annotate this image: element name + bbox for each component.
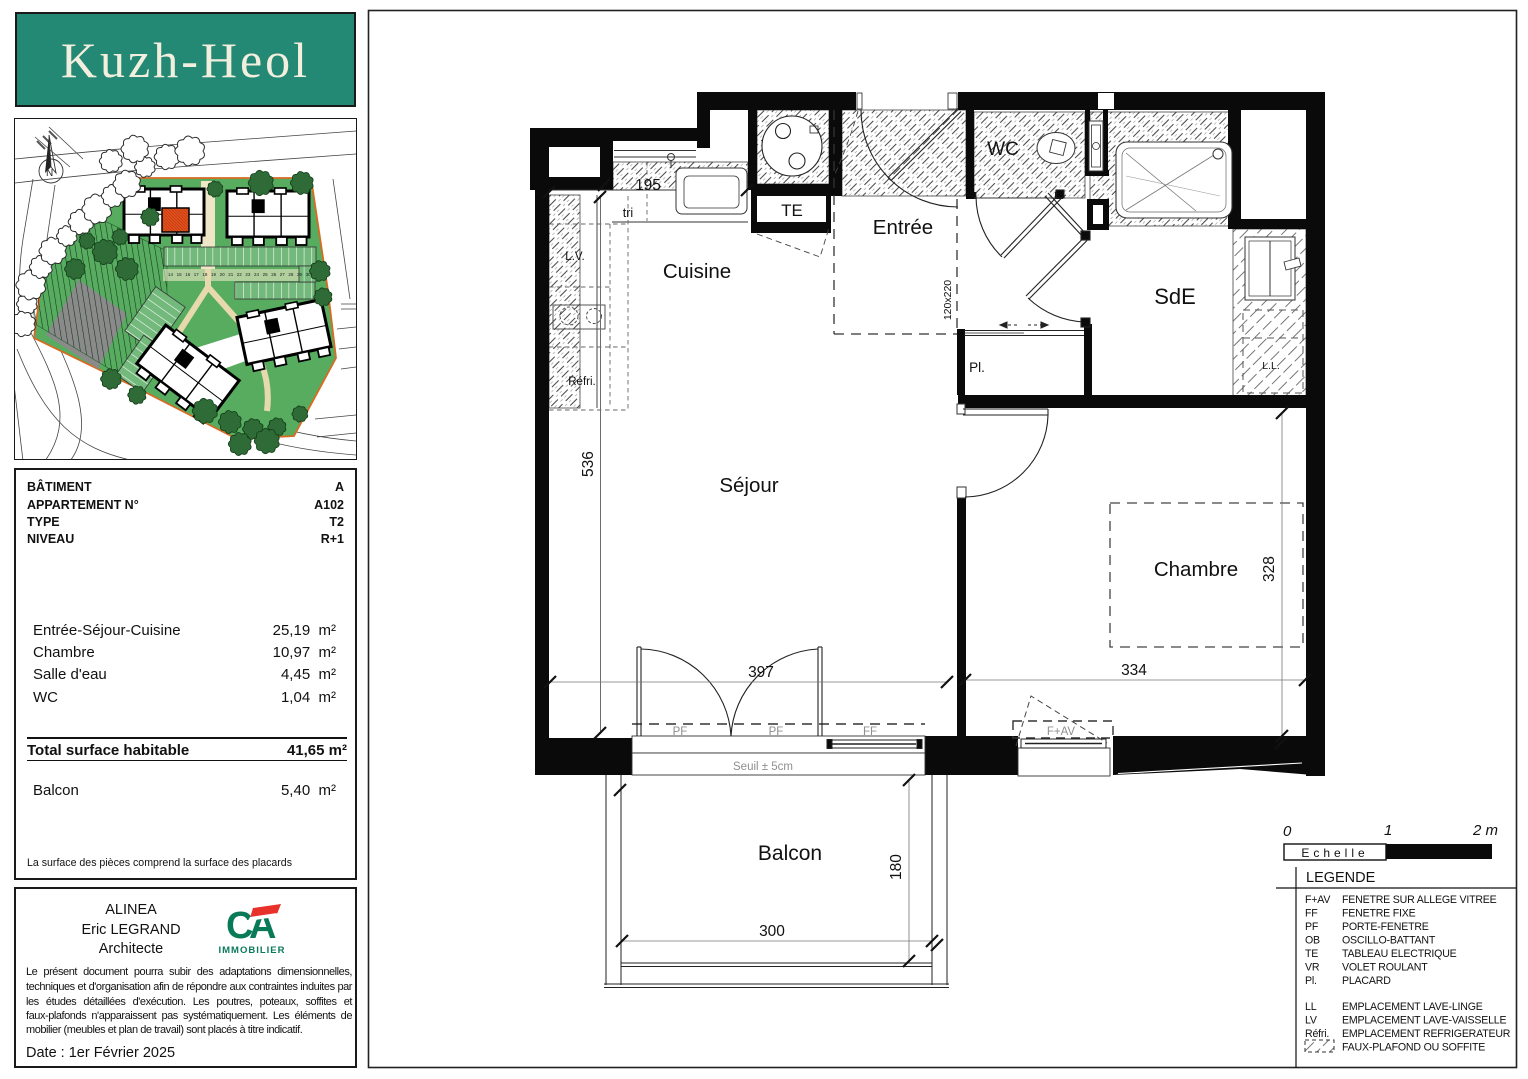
svg-text:Réfri.: Réfri. <box>568 376 595 388</box>
svg-text:PF: PF <box>673 726 688 738</box>
svg-text:2 m: 2 m <box>1472 822 1498 839</box>
svg-text:OSCILLO-BATTANT: OSCILLO-BATTANT <box>1342 935 1436 947</box>
svg-text:Chambre: Chambre <box>1154 558 1238 581</box>
svg-text:EMPLACEMENT REFRIGERATEUR: EMPLACEMENT REFRIGERATEUR <box>1342 1028 1511 1040</box>
svg-text:20: 20 <box>220 272 226 277</box>
svg-text:FAUX-PLAFOND OU SOFFITE: FAUX-PLAFOND OU SOFFITE <box>1342 1042 1485 1054</box>
svg-text:195: 195 <box>635 177 661 194</box>
svg-text:WC: WC <box>987 139 1019 160</box>
svg-text:VR: VR <box>1305 962 1320 974</box>
svg-text:180: 180 <box>888 854 905 880</box>
svg-text:Entrée: Entrée <box>873 216 933 239</box>
svg-text:Séjour: Séjour <box>719 474 778 497</box>
svg-text:1: 1 <box>1384 822 1392 839</box>
svg-text:328: 328 <box>1261 556 1278 582</box>
svg-text:LV: LV <box>1305 1015 1318 1027</box>
svg-text:PF: PF <box>1305 921 1319 933</box>
svg-text:SdE: SdE <box>1154 284 1196 309</box>
svg-text:24: 24 <box>254 272 260 277</box>
svg-text:300: 300 <box>759 923 785 940</box>
svg-text:22: 22 <box>237 272 243 277</box>
svg-text:Balcon: Balcon <box>758 842 822 865</box>
svg-text:28: 28 <box>288 272 294 277</box>
svg-text:FF: FF <box>1305 908 1318 920</box>
svg-text:17: 17 <box>194 272 200 277</box>
svg-text:EMPLACEMENT LAVE-VAISSELLE: EMPLACEMENT LAVE-VAISSELLE <box>1342 1015 1506 1027</box>
svg-text:14: 14 <box>168 272 174 277</box>
svg-text:TE: TE <box>1305 948 1318 960</box>
svg-text:27: 27 <box>280 272 286 277</box>
svg-text:25: 25 <box>263 272 269 277</box>
svg-text:15: 15 <box>177 272 183 277</box>
svg-text:536: 536 <box>580 451 597 477</box>
svg-text:Pl.: Pl. <box>1305 975 1317 987</box>
svg-text:LL: LL <box>1305 1001 1317 1013</box>
svg-text:FF: FF <box>863 726 877 738</box>
svg-text:Réfri.: Réfri. <box>1305 1028 1329 1040</box>
svg-text:PLACARD: PLACARD <box>1342 975 1391 987</box>
svg-text:OB: OB <box>1305 935 1320 947</box>
svg-text:L.L.: L.L. <box>1262 360 1280 372</box>
svg-text:EMPLACEMENT LAVE-LINGE: EMPLACEMENT LAVE-LINGE <box>1342 1001 1483 1013</box>
svg-text:IMMOBILIER: IMMOBILIER <box>219 945 286 956</box>
svg-text:334: 334 <box>1121 662 1147 679</box>
svg-text:FENETRE SUR ALLEGE VITREE: FENETRE SUR ALLEGE VITREE <box>1342 894 1497 906</box>
svg-text:F+AV: F+AV <box>1047 726 1076 738</box>
svg-text:Pl.: Pl. <box>969 360 985 375</box>
svg-text:PF: PF <box>769 726 784 738</box>
svg-text:tri: tri <box>623 206 633 220</box>
svg-text:16: 16 <box>185 272 191 277</box>
svg-text:23: 23 <box>245 272 251 277</box>
svg-text:397: 397 <box>748 664 774 681</box>
svg-text:Echelle: Echelle <box>1301 846 1368 860</box>
svg-text:Cuisine: Cuisine <box>663 260 731 283</box>
svg-text:N: N <box>46 168 53 179</box>
svg-text:19: 19 <box>211 272 217 277</box>
svg-text:LEGENDE: LEGENDE <box>1306 870 1376 886</box>
svg-text:29: 29 <box>297 272 303 277</box>
svg-text:L.V.: L.V. <box>565 251 584 263</box>
svg-text:TE: TE <box>781 201 803 220</box>
svg-text:FENETRE FIXE: FENETRE FIXE <box>1342 908 1416 920</box>
svg-text:VOLET ROULANT: VOLET ROULANT <box>1342 962 1428 974</box>
svg-text:120x220: 120x220 <box>942 280 954 320</box>
svg-text:26: 26 <box>271 272 277 277</box>
svg-text:F+AV: F+AV <box>1305 894 1331 906</box>
svg-text:18: 18 <box>202 272 208 277</box>
svg-text:21: 21 <box>228 272 234 277</box>
svg-text:0: 0 <box>1283 823 1292 840</box>
svg-text:TABLEAU ELECTRIQUE: TABLEAU ELECTRIQUE <box>1342 948 1457 960</box>
svg-text:Seuil ± 5cm: Seuil ± 5cm <box>733 761 793 773</box>
svg-text:PORTE-FENETRE: PORTE-FENETRE <box>1342 921 1429 933</box>
